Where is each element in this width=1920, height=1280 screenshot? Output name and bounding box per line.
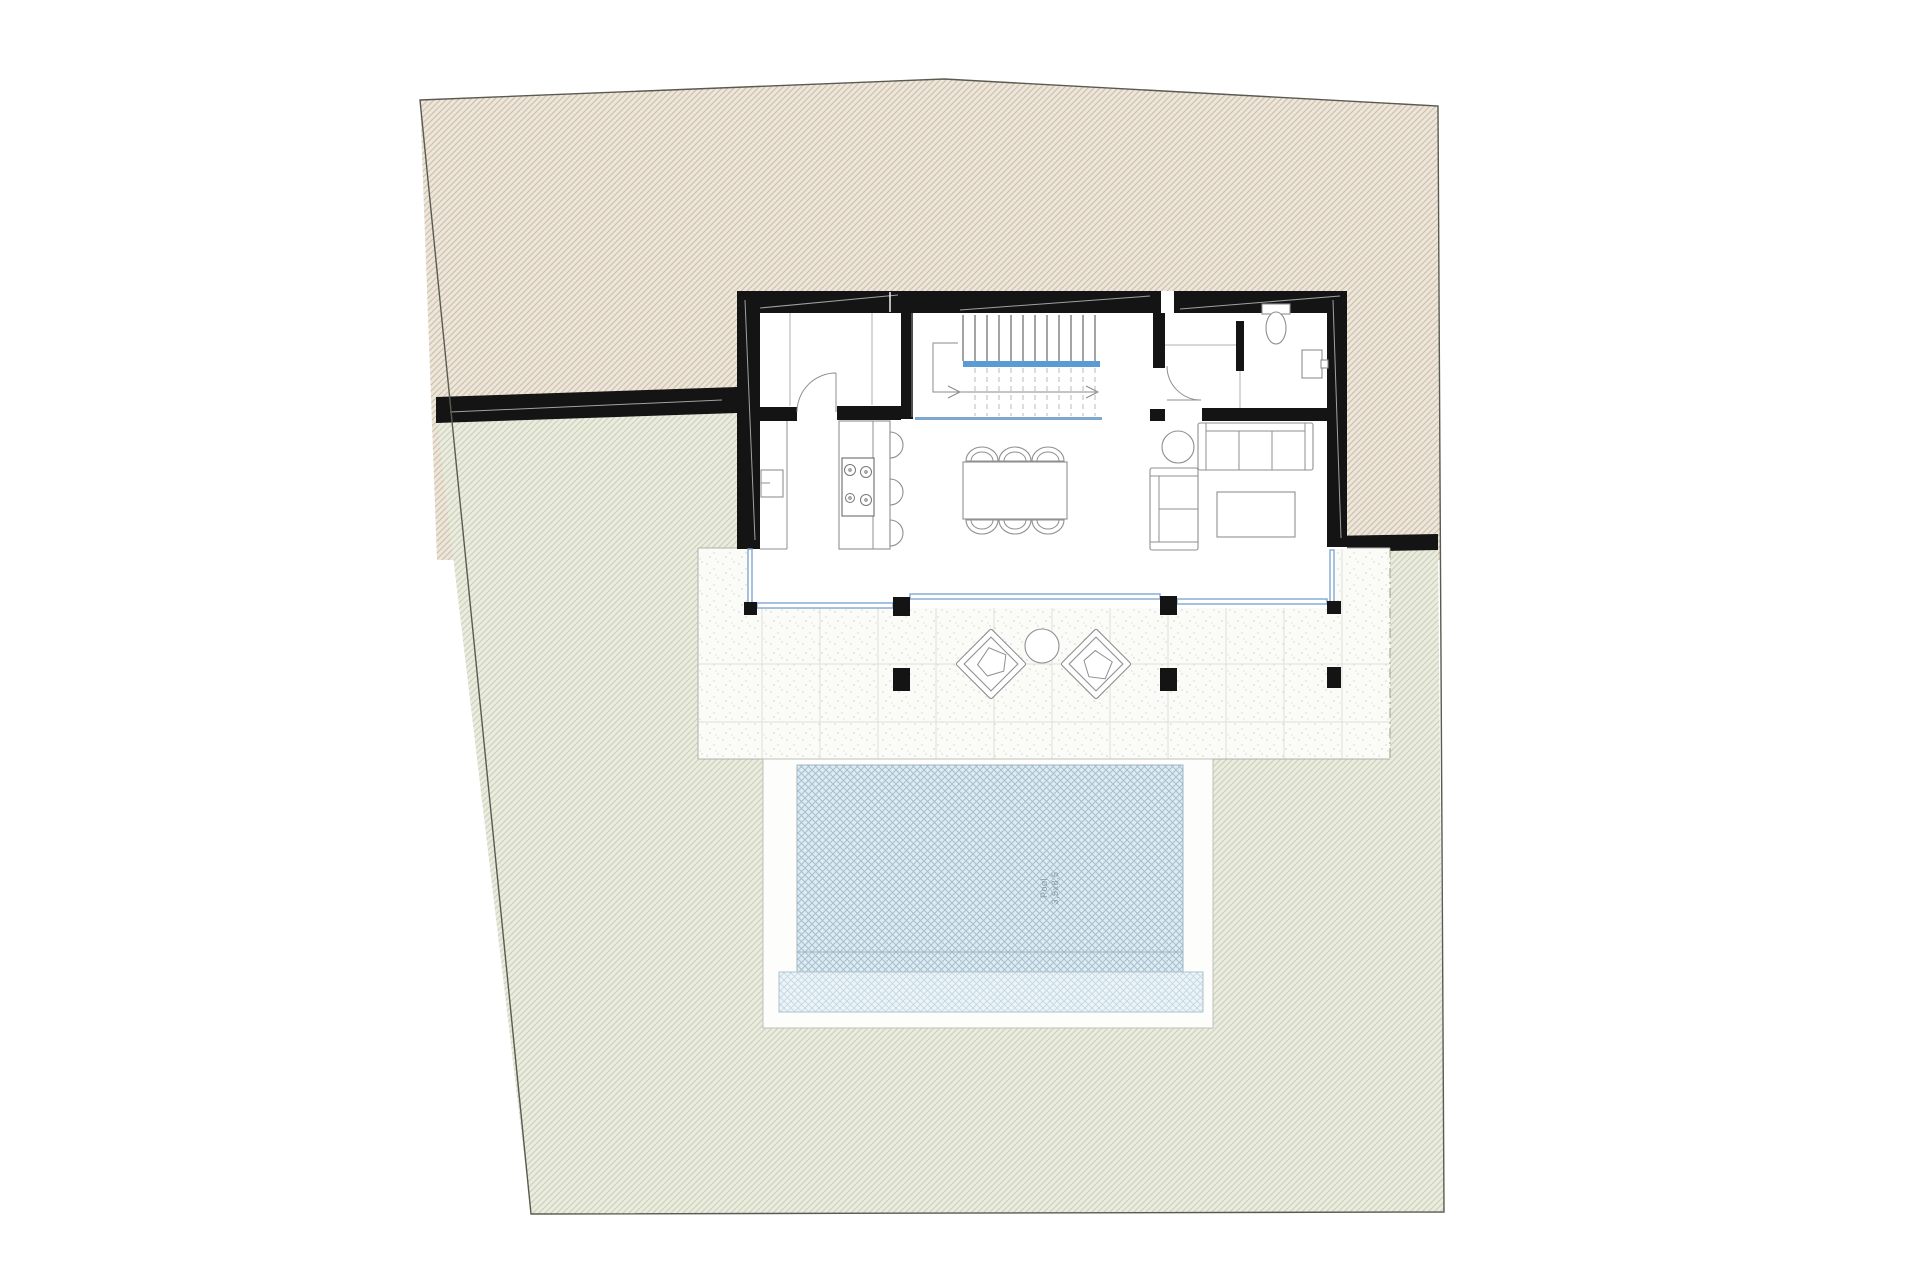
hall-partition [1153,313,1165,368]
floor-plan-drawing: Pool 3,5x8,5 [0,0,1920,1280]
facade-column-1 [893,597,910,616]
sliding-door-left[interactable] [757,603,893,608]
west-wall [737,291,760,549]
site-plan-canvas: Pool 3,5x8,5 [0,0,1920,1280]
glass-west-return [748,549,752,603]
pool-area: Pool 3,5x8,5 [763,759,1213,1028]
sliding-door-right[interactable] [1177,599,1327,604]
dining-area [963,447,1067,534]
toilet [1266,312,1286,344]
glass-east-return [1330,550,1334,602]
living-north-wall-stub [1150,409,1165,421]
pantry-south-wall-right [837,406,901,420]
facade-post-west [744,602,757,615]
faucet [1321,360,1328,368]
side-table-round [1162,431,1194,463]
washbasin [1302,350,1322,378]
dining-table [963,462,1067,519]
bathroom-partition [1236,321,1244,371]
coffee-table [1217,492,1295,537]
sliding-door-center[interactable] [910,594,1160,599]
bar-stools [890,432,903,546]
stair-lower-rail [915,417,1102,420]
north-wall-left [737,291,1161,313]
pergola-column-3 [1327,667,1341,688]
pool-label: Pool [1039,878,1049,898]
house [737,291,1347,616]
pantry-south-wall-left [760,407,797,421]
pergola-column-2 [1160,668,1177,691]
stair-guardrail [963,361,1100,367]
facade-column-2 [1160,596,1177,615]
pergola-column-1 [893,668,910,691]
sofa-three-seat [1198,423,1313,470]
pool-water [797,765,1183,972]
stove [842,458,874,516]
pantry-partition [901,313,913,419]
pool-size-label: 3,5x8,5 [1050,871,1060,904]
living-north-wall [1202,408,1327,421]
pool-shallow-shelf [779,972,1203,1012]
facade-post-east [1327,601,1341,614]
terrace-round-table [1025,629,1059,663]
